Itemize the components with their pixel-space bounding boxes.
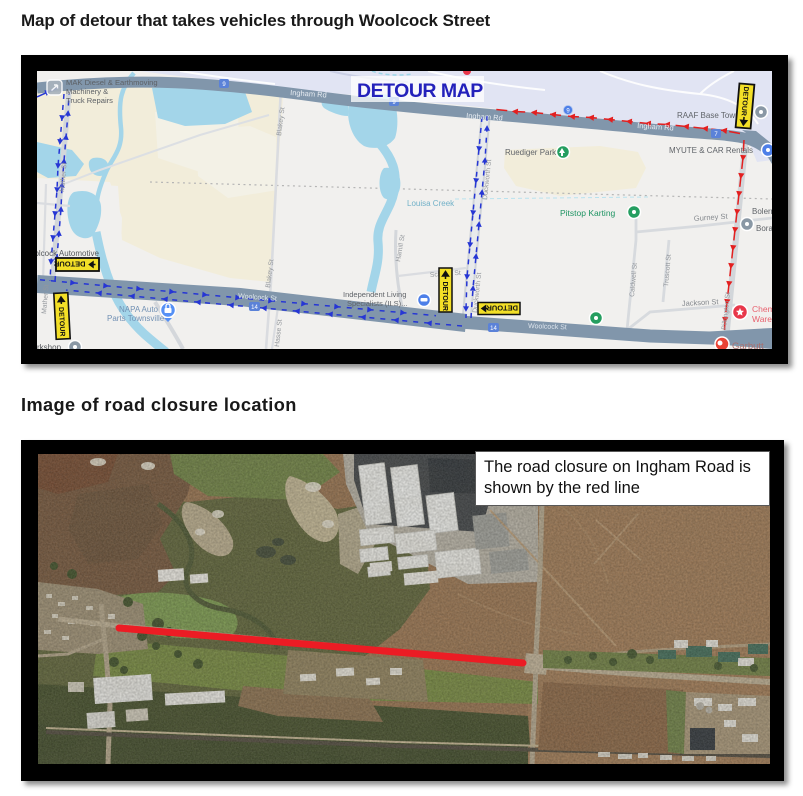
svg-text:NAPA Auto: NAPA Auto (119, 305, 159, 314)
svg-text:MYUTE & CAR Rentals: MYUTE & CAR Rentals (669, 146, 753, 155)
svg-text:MAK Diesel & Earthmoving: MAK Diesel & Earthmoving (66, 78, 158, 87)
svg-text:14: 14 (251, 305, 258, 311)
svg-text:Ruediger Park: Ruediger Park (505, 148, 557, 157)
svg-text:Independent Living: Independent Living (343, 290, 406, 299)
svg-text:DETOUR: DETOUR (441, 282, 448, 311)
svg-text:Pitstop Karting: Pitstop Karting (560, 208, 616, 218)
svg-text:Bora: Bora (756, 224, 772, 233)
svg-text:DETOUR: DETOUR (486, 304, 518, 313)
svg-text:Specialists (ILS)...: Specialists (ILS)... (347, 299, 407, 308)
svg-text:Woolcock St: Woolcock St (528, 323, 567, 331)
svg-text:Bolern S: Bolern S (752, 207, 772, 216)
svg-text:Parts Townsville: Parts Townsville (107, 314, 165, 323)
svg-text:Wareho: Wareho (752, 314, 772, 324)
svg-text:Chemis: Chemis (752, 304, 772, 314)
svg-text:rkshop: rkshop (37, 343, 62, 349)
svg-text:14: 14 (490, 326, 497, 332)
svg-text:oolcock Automotive: oolcock Automotive (37, 249, 99, 258)
svg-text:Truck Repairs: Truck Repairs (66, 96, 113, 105)
svg-text:RAAF Base Towns: RAAF Base Towns (677, 111, 744, 120)
svg-text:Louisa Creek: Louisa Creek (407, 199, 455, 208)
svg-text:DETOUR: DETOUR (53, 260, 85, 269)
svg-text:Garbutt: Garbutt (732, 341, 764, 349)
svg-text:Machinery &: Machinery & (66, 87, 108, 96)
svg-text:DETOUR MAP: DETOUR MAP (357, 80, 483, 102)
